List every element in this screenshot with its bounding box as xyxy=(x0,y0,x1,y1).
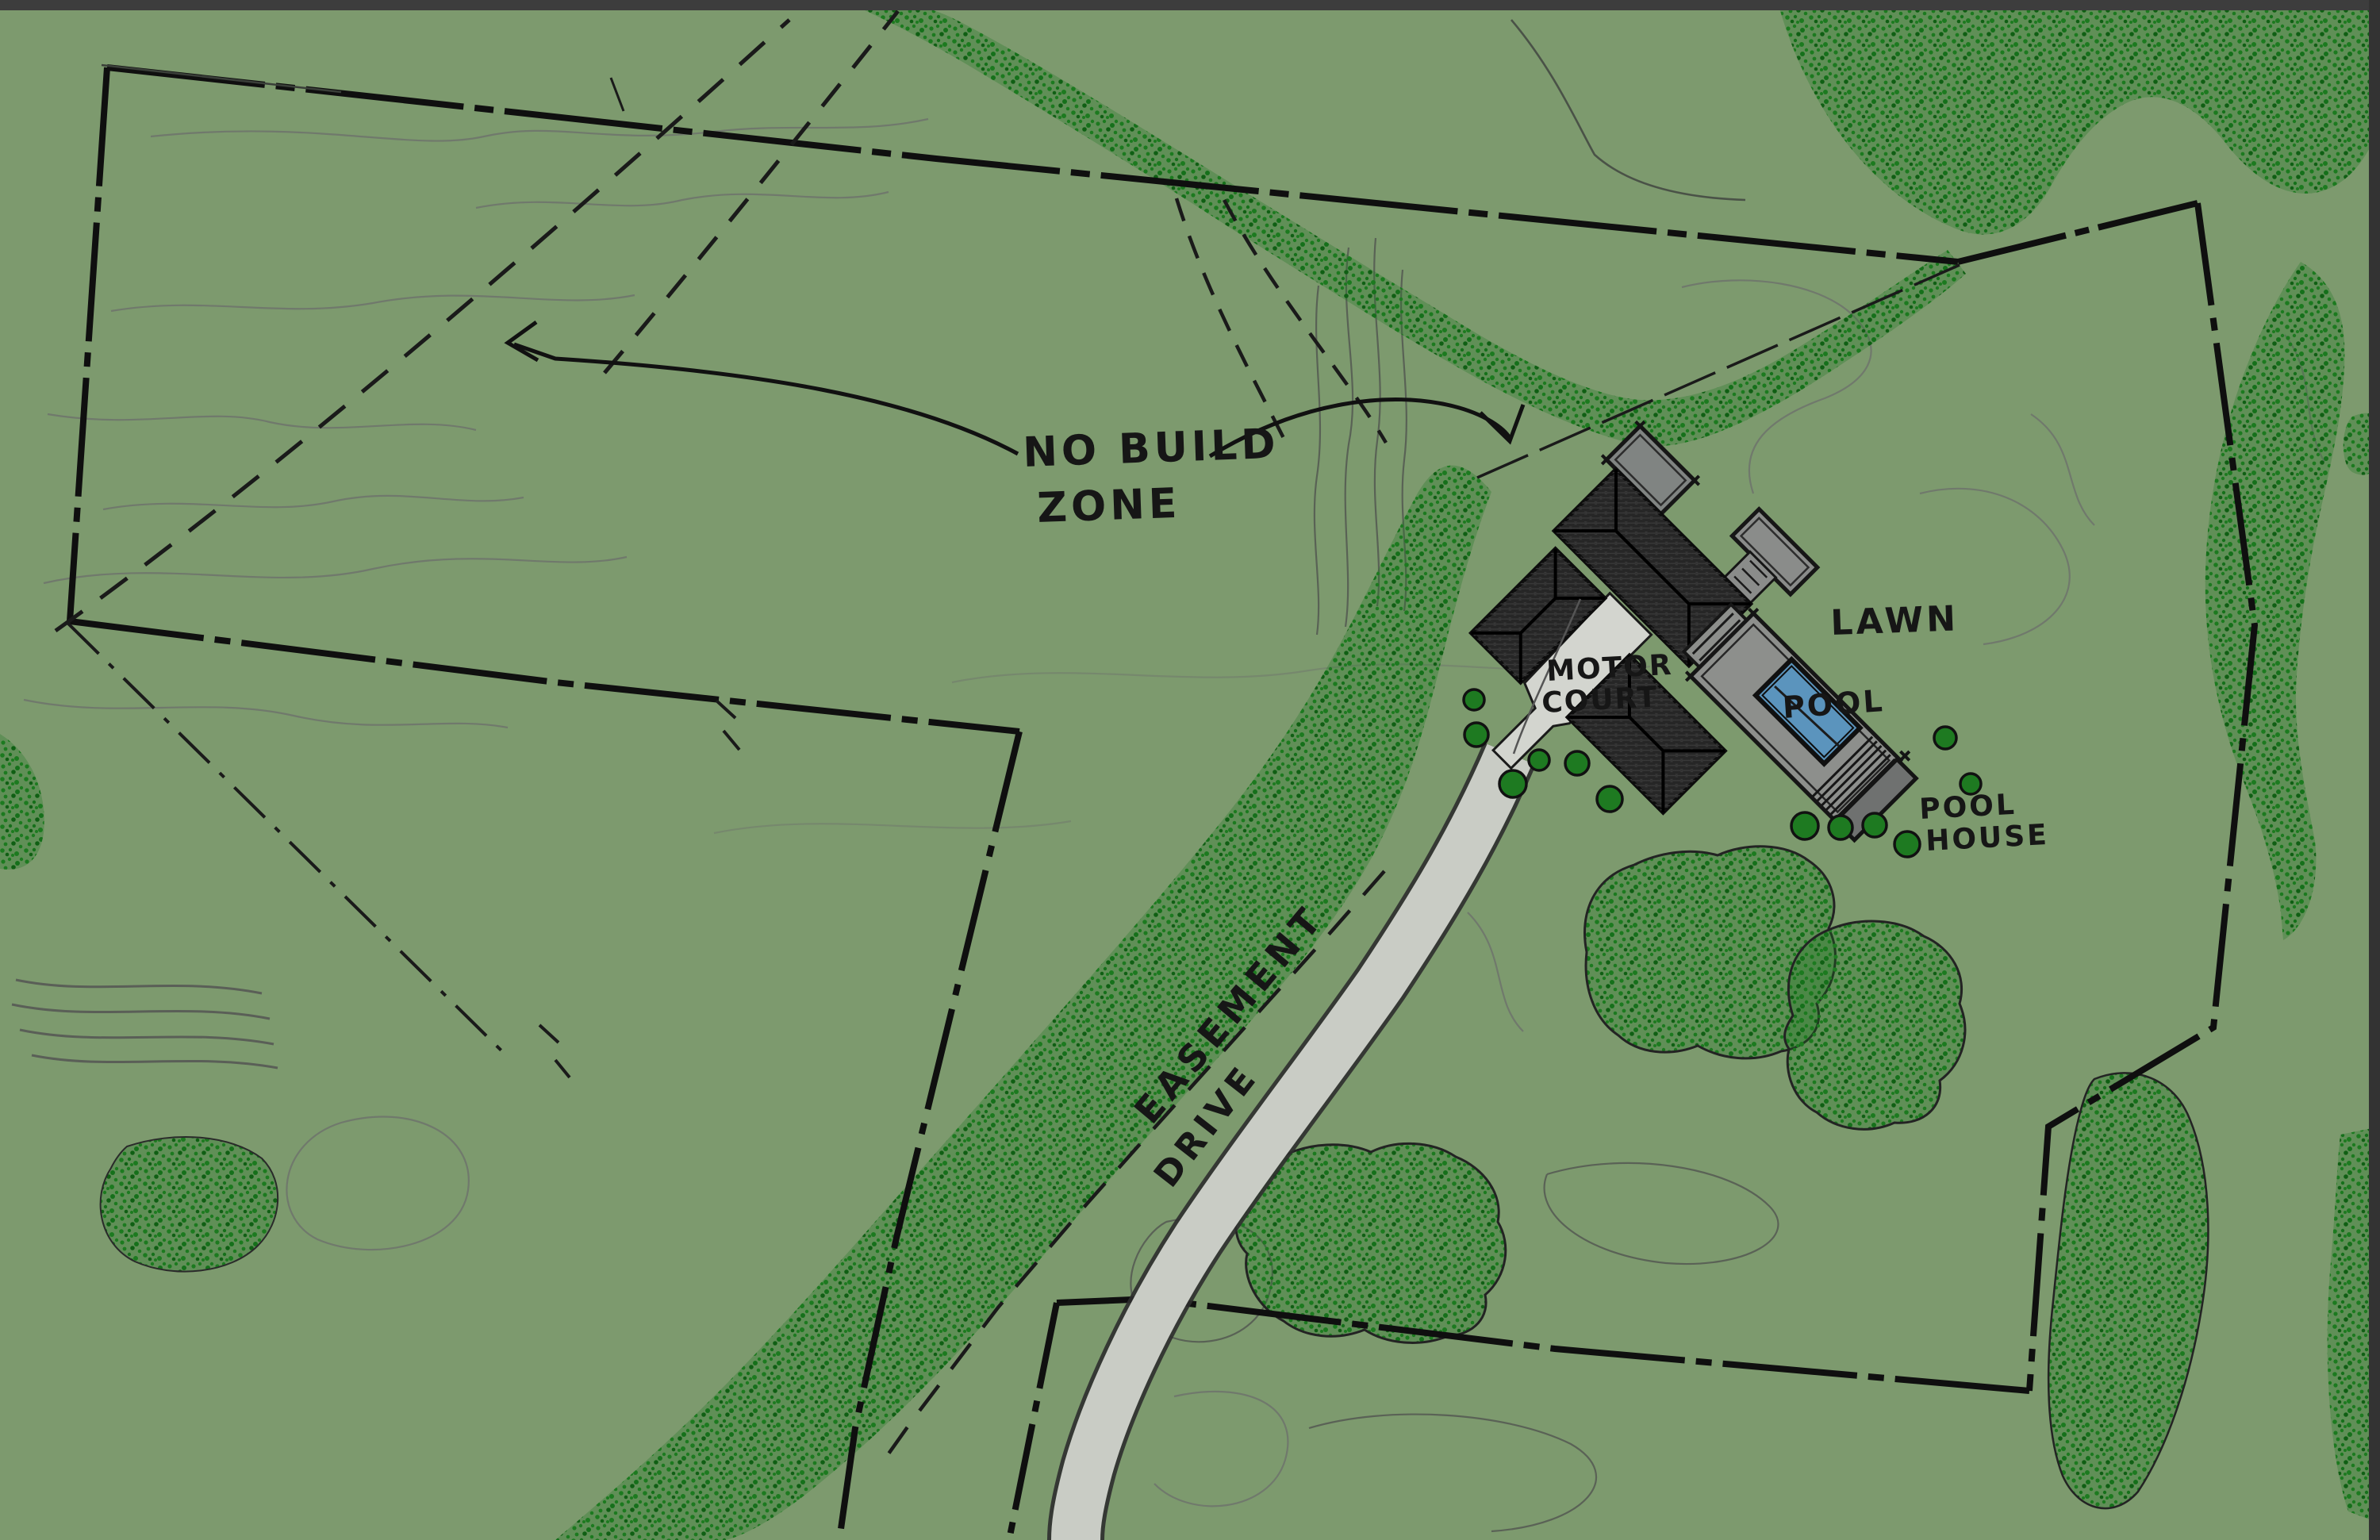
label-pool-house-line2: HOUSE xyxy=(1925,819,2049,858)
shrub xyxy=(1464,723,1488,747)
shrub xyxy=(1894,831,1920,857)
label-lawn: LAWN xyxy=(1830,598,1960,643)
label-pool-house-line1: POOL xyxy=(1918,789,2017,826)
site-plan-drawing: NO BUILD ZONE MOTOR COURT LAWN POOL POOL… xyxy=(0,0,2380,1540)
tree-cloud-below-lawn-right xyxy=(1785,921,1965,1129)
tree-patch-bottom-left xyxy=(101,1137,278,1272)
shrub xyxy=(1529,750,1549,770)
label-pool: POOL xyxy=(1782,683,1886,725)
ground-background xyxy=(0,0,2380,1540)
shrub xyxy=(1499,770,1526,797)
shrub xyxy=(1565,751,1589,775)
top-edge-strip xyxy=(0,0,2380,10)
site-plan-page: NO BUILD ZONE MOTOR COURT LAWN POOL POOL… xyxy=(0,0,2380,1540)
shrub xyxy=(1829,816,1852,839)
label-motor-court-line2: COURT xyxy=(1541,681,1659,720)
right-edge-strip xyxy=(2369,0,2380,1540)
label-no-build-line2: ZONE xyxy=(1036,480,1181,532)
shrub xyxy=(1464,689,1484,710)
label-no-build-line1: NO BUILD xyxy=(1022,421,1280,477)
shrub xyxy=(1934,727,1956,749)
shrub xyxy=(1791,812,1818,839)
shrub xyxy=(1597,786,1622,812)
shrub xyxy=(1863,813,1887,837)
